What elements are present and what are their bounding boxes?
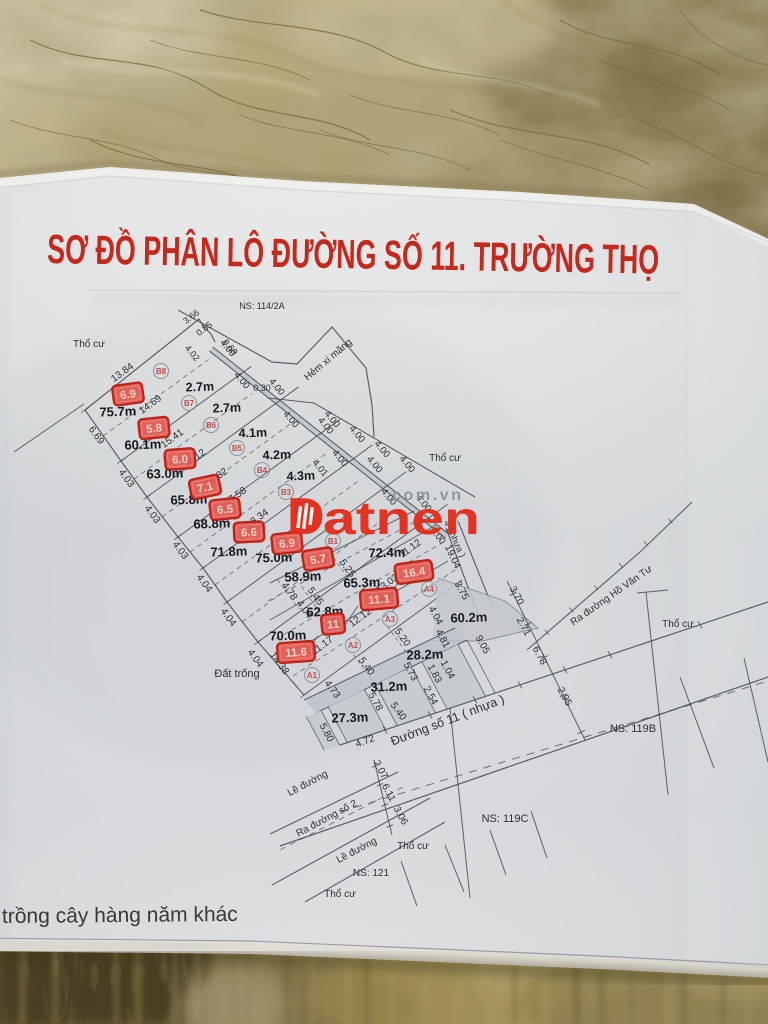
svg-text:11.1: 11.1: [368, 593, 391, 607]
svg-text:6.9: 6.9: [119, 388, 137, 402]
svg-text:NS: 114/2A: NS: 114/2A: [239, 301, 284, 311]
svg-text:A4: A4: [424, 585, 435, 594]
svg-text:B5: B5: [232, 444, 243, 453]
svg-text:4.3m: 4.3m: [286, 469, 315, 484]
svg-text:B6: B6: [206, 421, 217, 430]
svg-text:60.2m: 60.2m: [450, 609, 487, 625]
svg-text:71.8m: 71.8m: [210, 543, 247, 559]
svg-text:NS: 119C: NS: 119C: [482, 813, 529, 825]
svg-text:B7: B7: [184, 399, 195, 408]
svg-text:trồng cây hàng năm khác: trồng cây hàng năm khác: [2, 903, 238, 928]
svg-text:4.1m: 4.1m: [238, 426, 267, 441]
svg-text:NS: 121: NS: 121: [353, 868, 390, 879]
svg-text:A2: A2: [348, 641, 359, 650]
svg-text:11.6: 11.6: [285, 646, 308, 659]
svg-text:A1: A1: [307, 671, 318, 680]
svg-text:0.30: 0.30: [253, 383, 271, 393]
svg-text:2.7m: 2.7m: [212, 401, 241, 416]
svg-text:Thổ cư: Thổ cư: [397, 840, 429, 852]
svg-text:4.2m: 4.2m: [262, 448, 291, 463]
svg-text:B8: B8: [156, 367, 167, 376]
svg-text:B4: B4: [257, 466, 268, 475]
svg-text:6.5: 6.5: [217, 503, 235, 517]
svg-text:atnen: atnen: [323, 492, 480, 544]
svg-text:2.7m: 2.7m: [185, 380, 214, 395]
svg-text:NS: 119B: NS: 119B: [610, 723, 656, 735]
svg-text:6.6: 6.6: [241, 527, 258, 540]
svg-text:Thổ cư: Thổ cư: [324, 888, 356, 900]
svg-text:11: 11: [326, 619, 340, 632]
svg-text:27.3m: 27.3m: [331, 709, 368, 725]
svg-text:Đất trống: Đất trống: [214, 668, 259, 680]
svg-text:Thổ cư: Thổ cư: [429, 452, 461, 464]
svg-text:5.8: 5.8: [146, 422, 164, 436]
svg-text:6.0: 6.0: [172, 454, 189, 467]
svg-text:Thổ cư: Thổ cư: [662, 618, 694, 630]
svg-text:A3: A3: [385, 615, 396, 624]
svg-text:5.7: 5.7: [309, 553, 327, 567]
svg-text:Thổ cư: Thổ cư: [73, 338, 105, 350]
svg-text:28.2m: 28.2m: [406, 646, 443, 662]
